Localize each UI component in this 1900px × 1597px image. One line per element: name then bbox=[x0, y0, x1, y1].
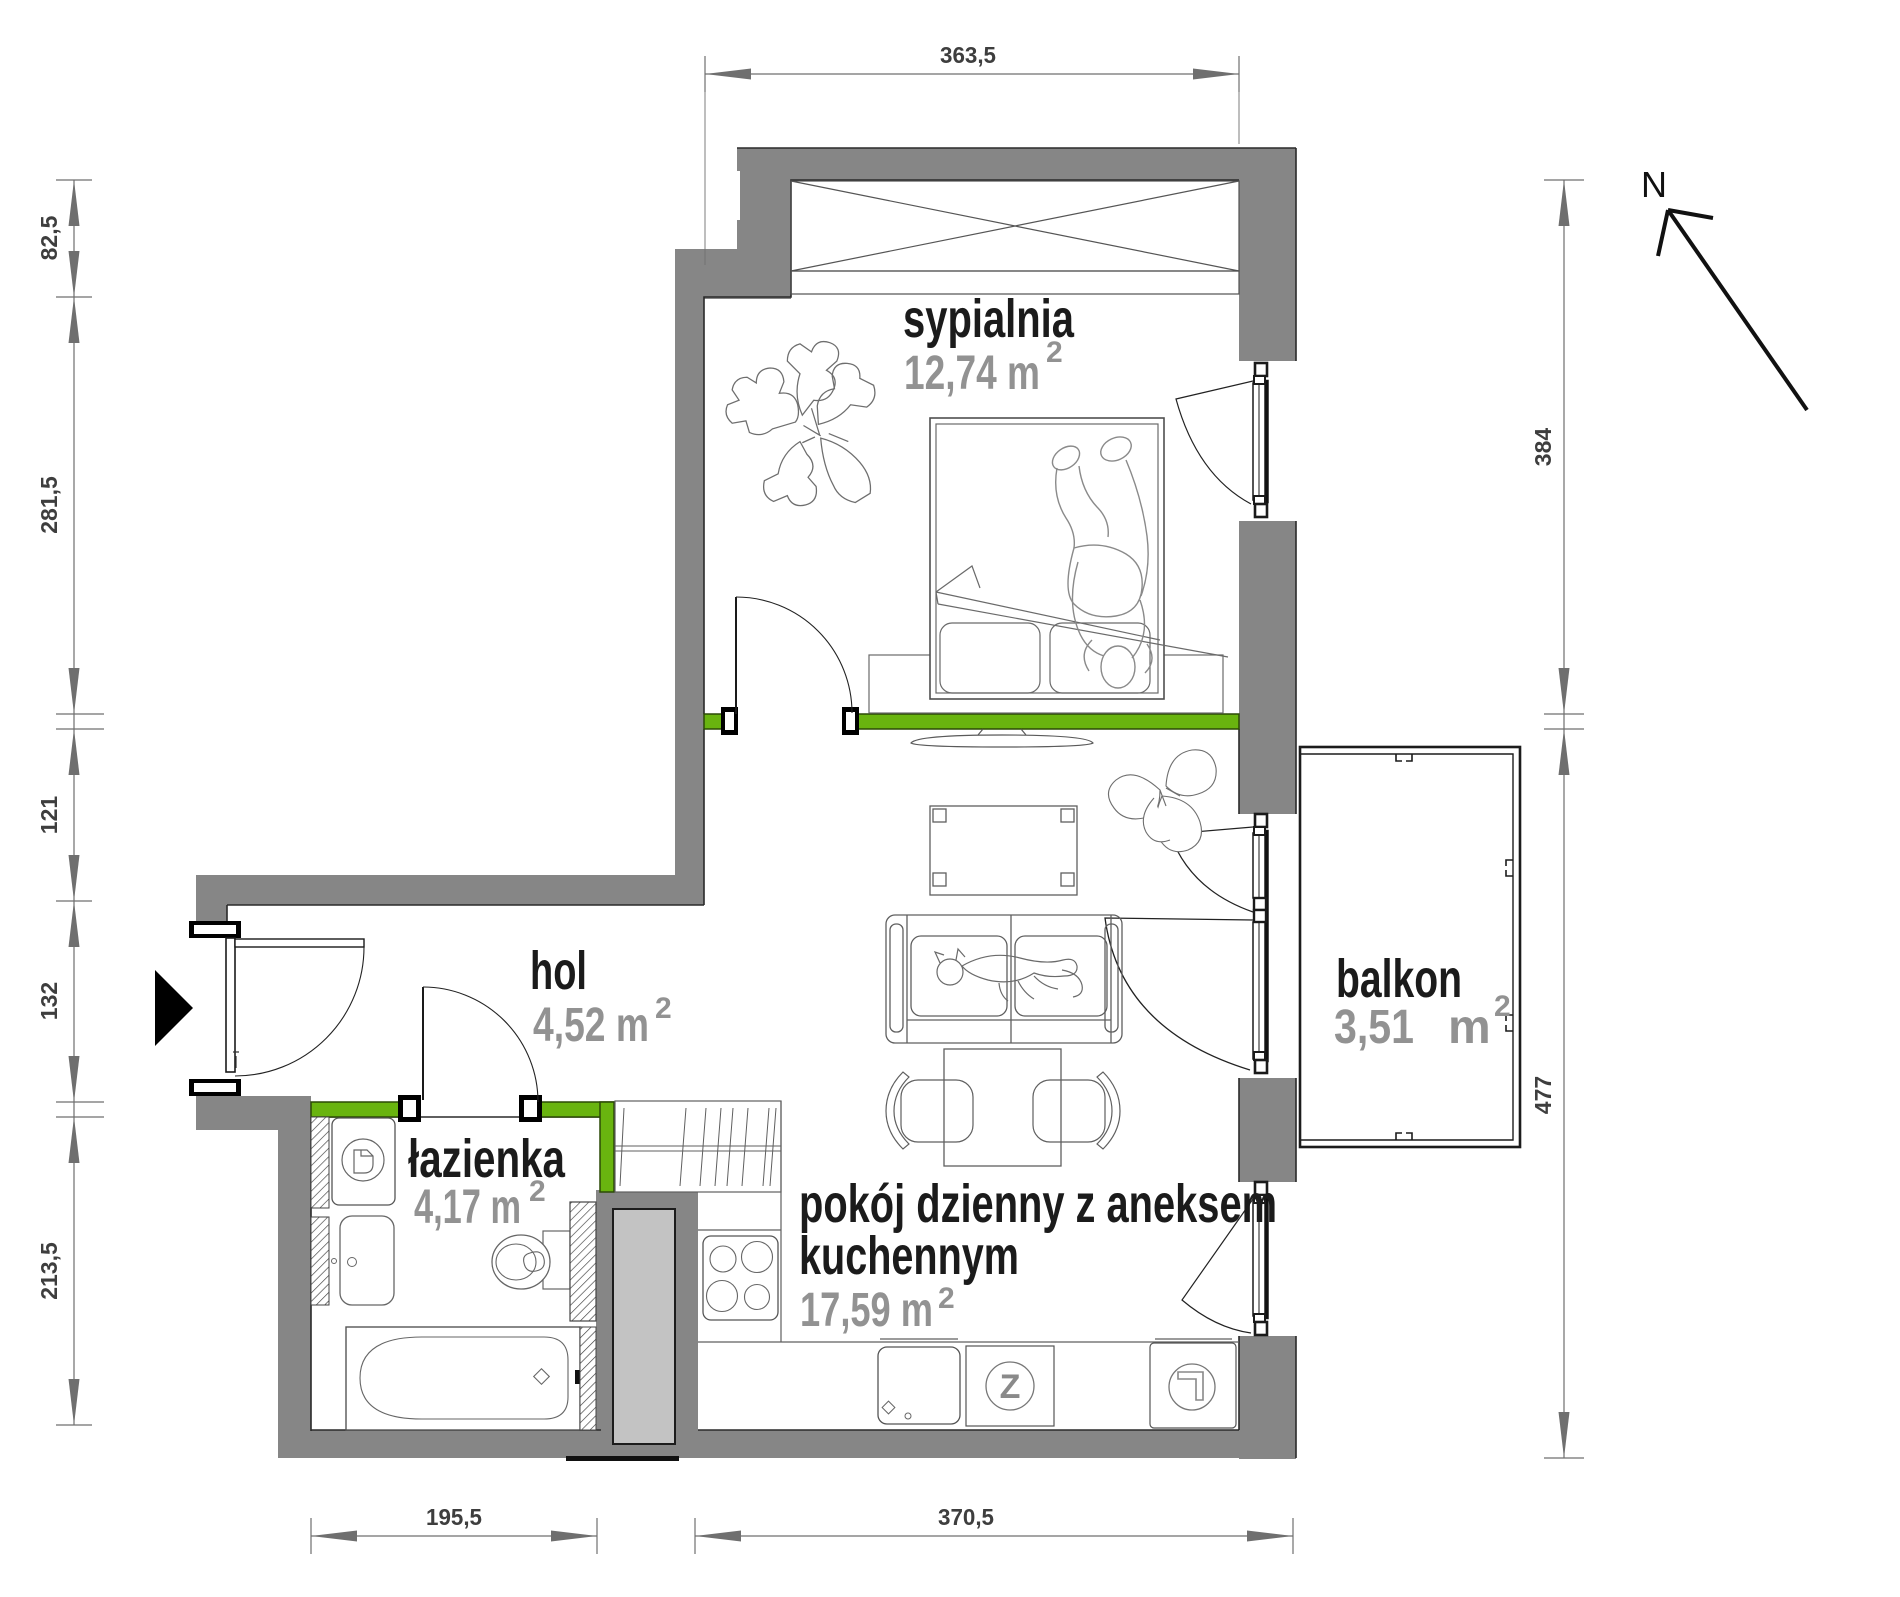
svg-text:hol: hol bbox=[530, 941, 587, 1001]
svg-text:17,59 m: 17,59 m bbox=[800, 1284, 933, 1337]
svg-text:balkon: balkon bbox=[1336, 949, 1462, 1009]
svg-text:132: 132 bbox=[36, 982, 62, 1020]
svg-text:Z: Z bbox=[1000, 1368, 1021, 1406]
svg-text:2: 2 bbox=[1494, 990, 1511, 1023]
svg-text:363,5: 363,5 bbox=[940, 42, 996, 68]
svg-text:12,74 m: 12,74 m bbox=[904, 347, 1040, 400]
svg-text:N: N bbox=[1641, 164, 1667, 205]
svg-text:2: 2 bbox=[938, 1282, 955, 1315]
svg-text:2: 2 bbox=[655, 992, 672, 1025]
svg-text:281,5: 281,5 bbox=[36, 476, 62, 534]
svg-text:370,5: 370,5 bbox=[938, 1504, 994, 1530]
svg-text:pokój dzienny z aneksem: pokój dzienny z aneksem bbox=[799, 1174, 1277, 1234]
svg-text:4,17 m: 4,17 m bbox=[414, 1181, 521, 1234]
svg-text:213,5: 213,5 bbox=[36, 1242, 62, 1300]
svg-text:2: 2 bbox=[529, 1175, 546, 1208]
svg-text:195,5: 195,5 bbox=[426, 1504, 482, 1530]
svg-text:477: 477 bbox=[1530, 1076, 1556, 1114]
svg-text:384: 384 bbox=[1530, 428, 1556, 467]
svg-text:82,5: 82,5 bbox=[36, 215, 62, 260]
svg-text:4,52 m: 4,52 m bbox=[533, 999, 649, 1052]
svg-text:2: 2 bbox=[1046, 336, 1063, 369]
svg-text:121: 121 bbox=[36, 796, 62, 835]
svg-text:m: m bbox=[1448, 1001, 1491, 1054]
svg-text:3,51: 3,51 bbox=[1334, 1001, 1414, 1054]
svg-text:kuchennym: kuchennym bbox=[799, 1226, 1019, 1286]
